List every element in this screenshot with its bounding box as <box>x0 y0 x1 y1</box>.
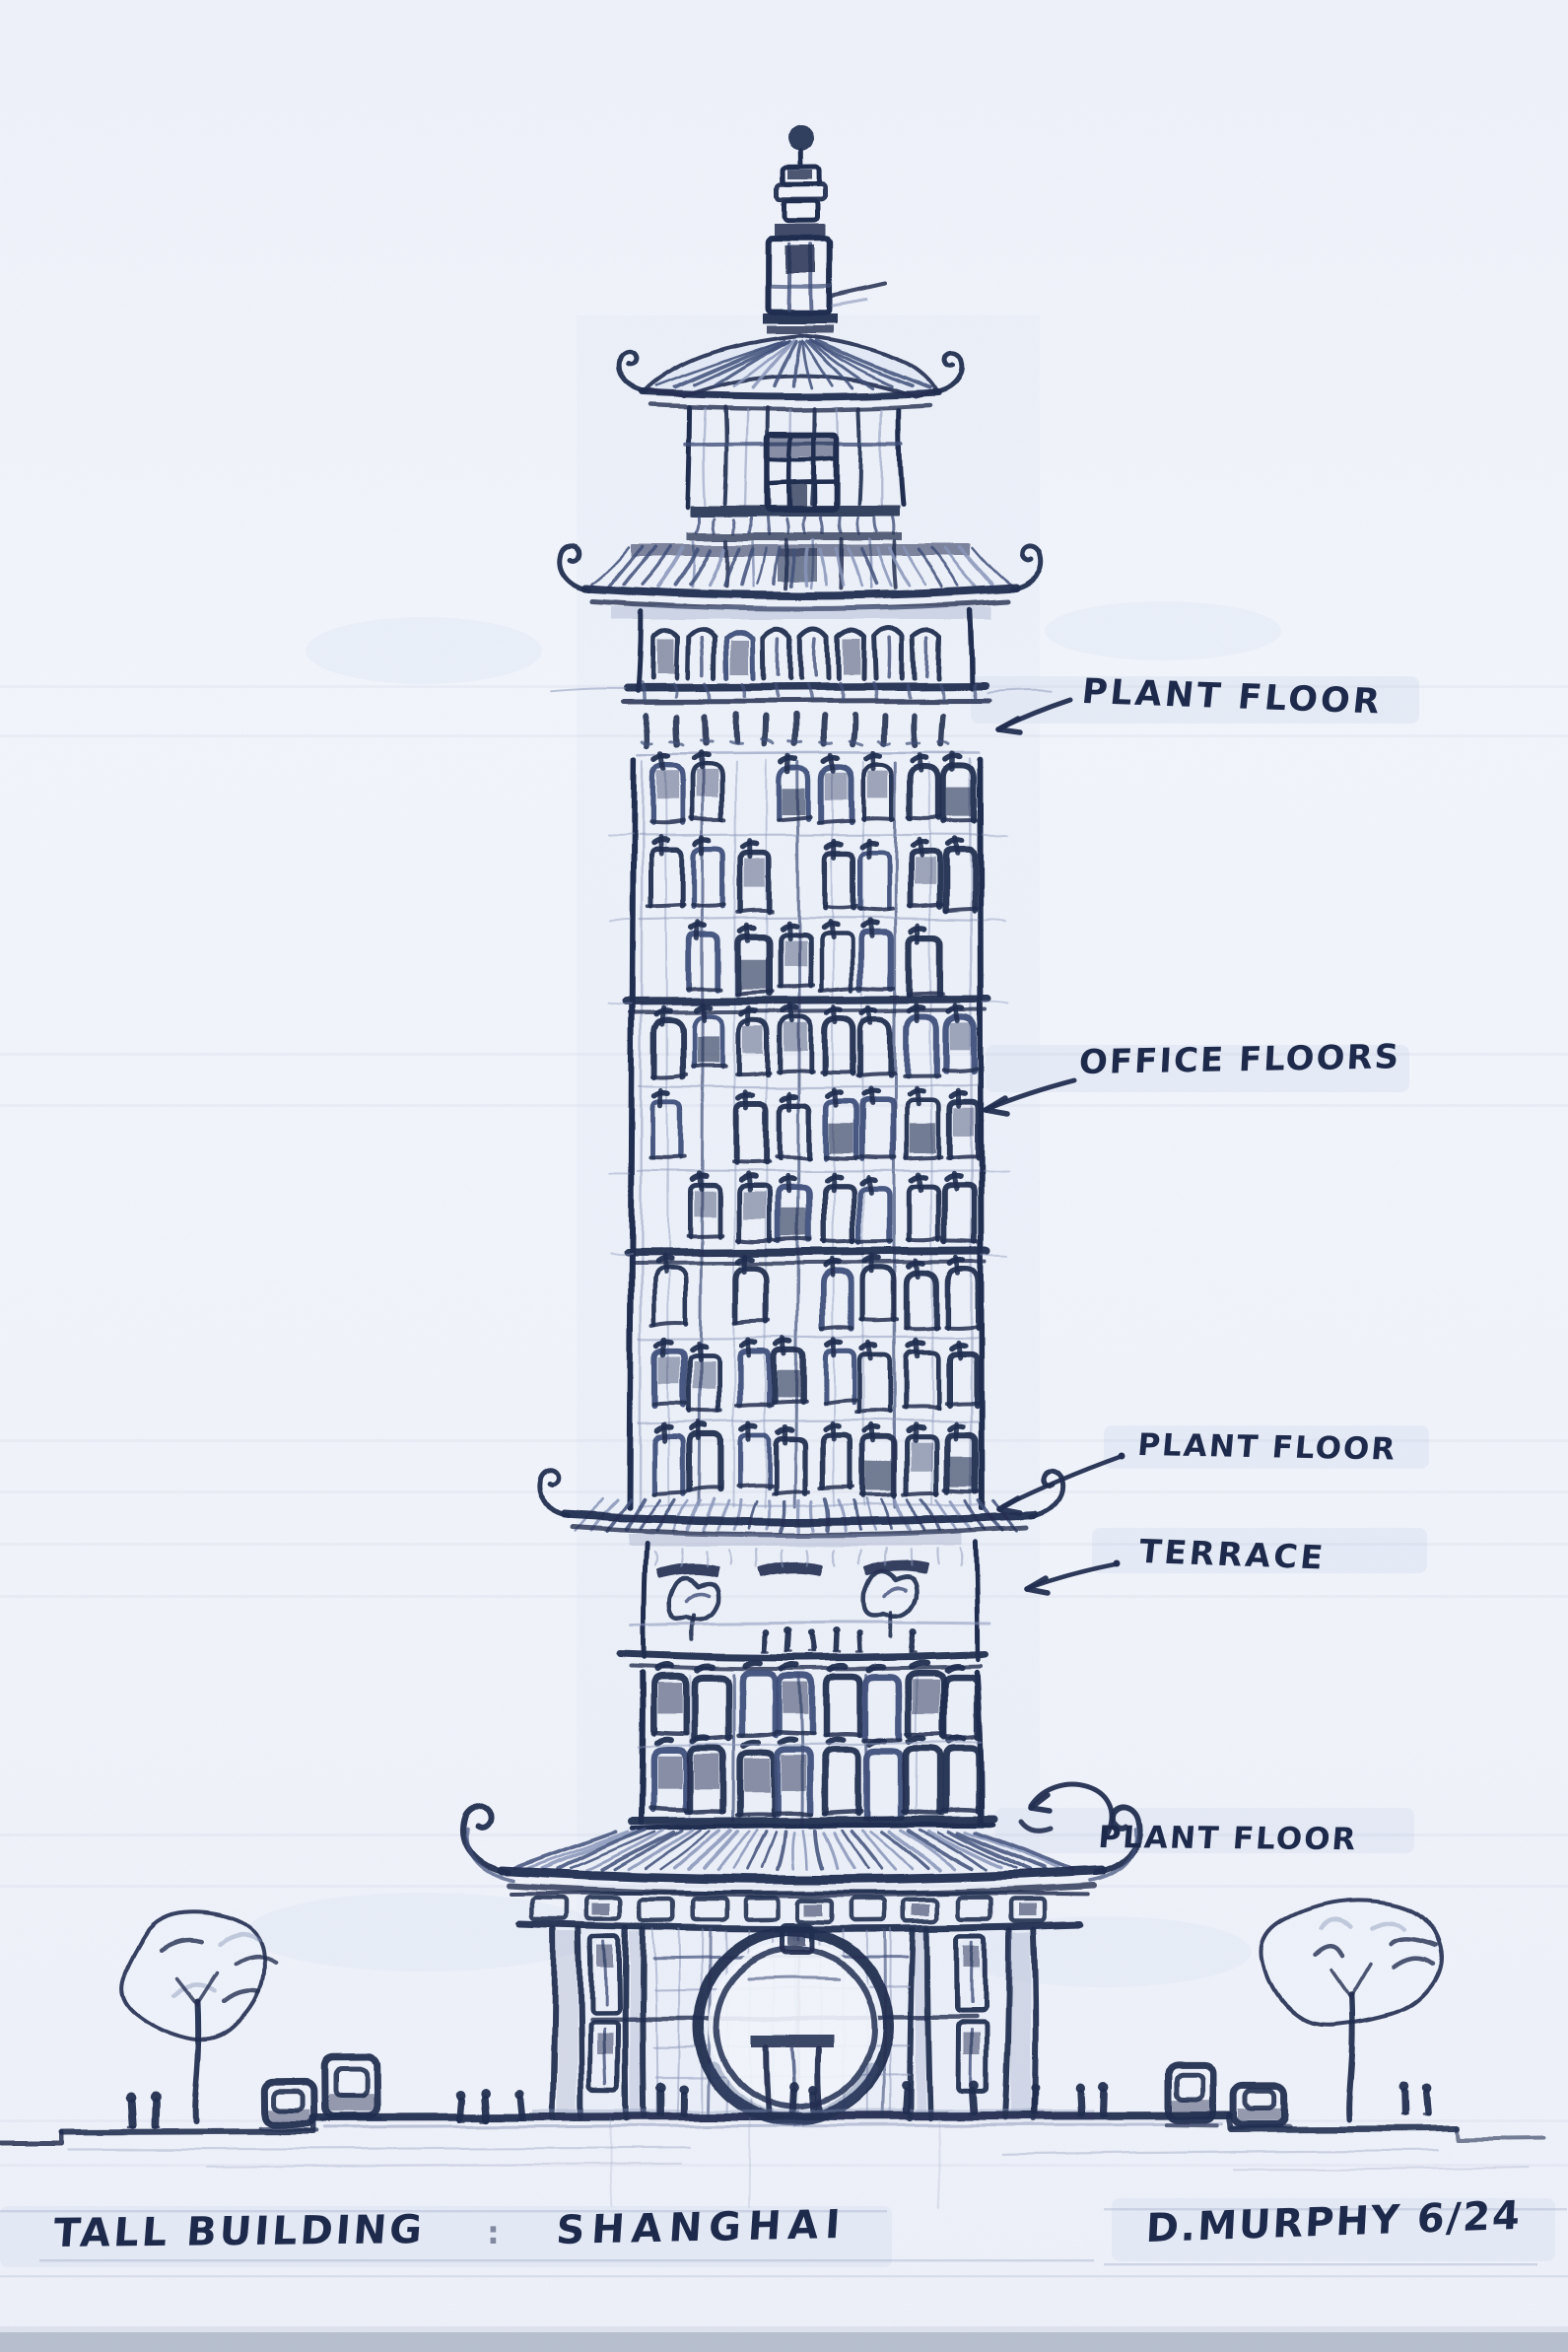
sheet-title-location: SHANGHAI <box>555 2202 849 2253</box>
paper-texture <box>0 0 1568 2352</box>
sheet-title-separator: : <box>487 2214 500 2251</box>
annotation-terrace: TERRACE <box>1137 1532 1328 1576</box>
sheet-title: TALL BUILDING <box>51 2207 426 2256</box>
architectural-sketch-page: PLANT FLOOR OFFICE FLOORS PLANT FLOOR TE… <box>0 0 1568 2352</box>
annotation-office-floors: OFFICE FLOORS <box>1078 1037 1401 1082</box>
tower-sketch-canvas <box>0 0 1568 2352</box>
annotation-plant-floor-base: PLANT FLOOR <box>1097 1820 1359 1857</box>
annotation-plant-floor-mid: PLANT FLOOR <box>1136 1427 1398 1468</box>
